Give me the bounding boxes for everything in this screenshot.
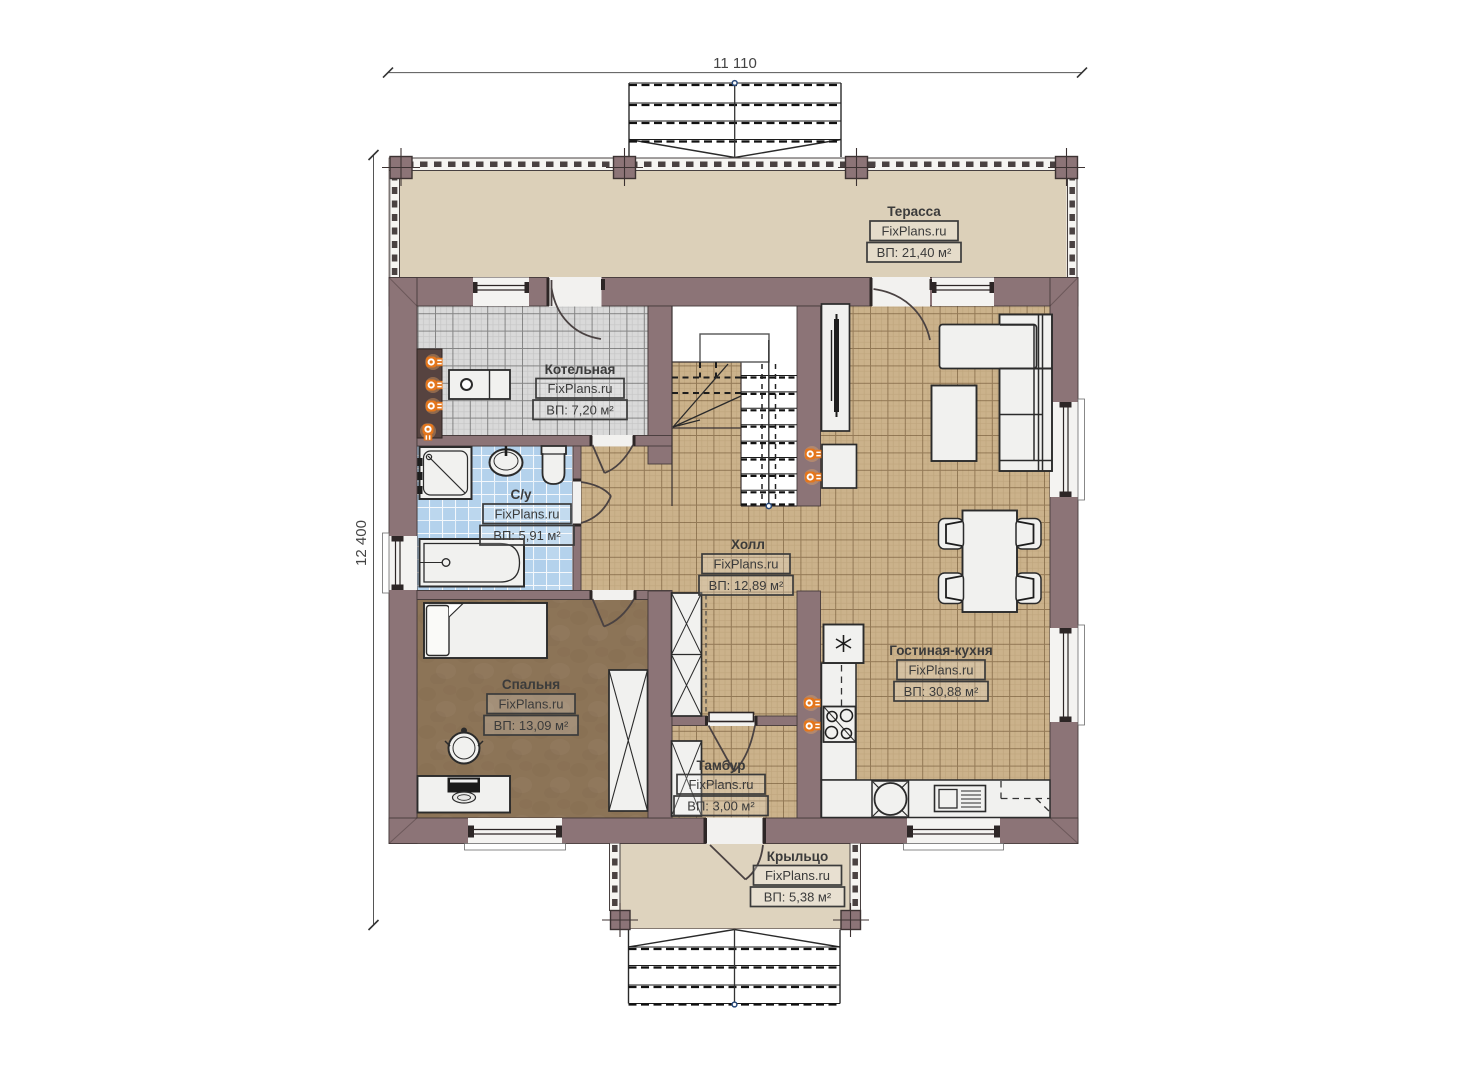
svg-text:FixPlans.ru: FixPlans.ru: [881, 224, 946, 239]
svg-text:ВП: 3,00 м²: ВП: 3,00 м²: [687, 799, 755, 814]
svg-text:FixPlans.ru: FixPlans.ru: [498, 697, 563, 712]
svg-text:FixPlans.ru: FixPlans.ru: [713, 557, 778, 572]
svg-text:ВП: 21,40 м²: ВП: 21,40 м²: [877, 245, 952, 260]
svg-text:Крыльцо: Крыльцо: [767, 849, 828, 864]
svg-text:Тамбур: Тамбур: [697, 758, 746, 773]
svg-text:Спальня: Спальня: [502, 677, 560, 692]
svg-text:Терасса: Терасса: [887, 204, 941, 219]
svg-text:12 400: 12 400: [353, 520, 370, 566]
svg-text:FixPlans.ru: FixPlans.ru: [688, 777, 753, 792]
svg-text:11 110: 11 110: [713, 55, 757, 72]
svg-text:ВП: 30,88 м²: ВП: 30,88 м²: [904, 684, 979, 699]
svg-text:С/у: С/у: [510, 487, 532, 502]
svg-text:ВП: 13,09 м²: ВП: 13,09 м²: [494, 718, 569, 733]
svg-text:FixPlans.ru: FixPlans.ru: [494, 507, 559, 522]
svg-text:ВП: 5,38 м²: ВП: 5,38 м²: [764, 890, 832, 905]
svg-text:ВП: 5,91 м²: ВП: 5,91 м²: [493, 528, 561, 543]
svg-text:FixPlans.ru: FixPlans.ru: [547, 381, 612, 396]
svg-text:Холл: Холл: [731, 537, 765, 552]
svg-text:FixPlans.ru: FixPlans.ru: [765, 868, 830, 883]
svg-text:ВП: 7,20 м²: ВП: 7,20 м²: [546, 403, 614, 418]
svg-text:ВП: 12,89 м²: ВП: 12,89 м²: [709, 578, 784, 593]
svg-text:Котельная: Котельная: [545, 362, 616, 377]
svg-text:FixPlans.ru: FixPlans.ru: [908, 663, 973, 678]
svg-text:Гостиная-кухня: Гостиная-кухня: [889, 643, 992, 658]
